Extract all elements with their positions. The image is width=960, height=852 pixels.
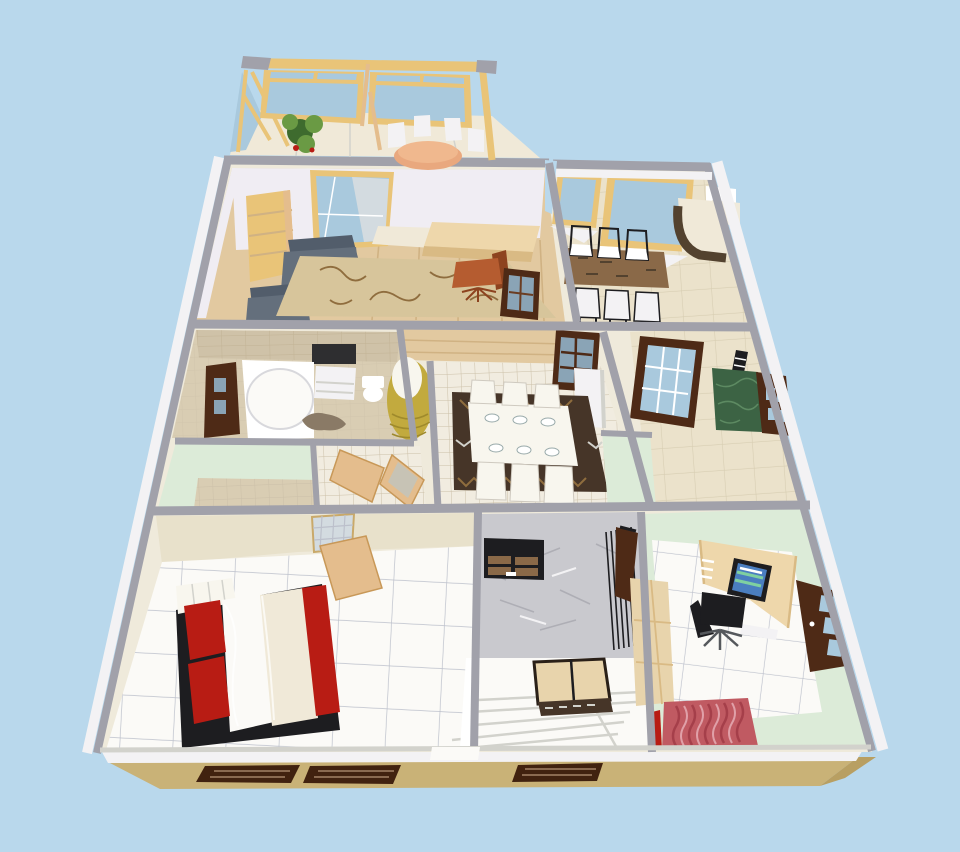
mint-room-floor [194,478,320,508]
bathroom [172,330,412,440]
bathroom-vanity[interactable] [314,366,356,400]
sunroom-corner-cap-left [241,56,271,70]
corner-bathtub[interactable] [242,360,314,440]
bed[interactable] [176,578,340,748]
wall-h2 [149,505,810,511]
top-wall-main [224,160,549,163]
wall-h1 [189,324,754,327]
kitchen-chairs-front[interactable] [476,462,574,504]
bathroom-wall-tiles [196,330,400,362]
living-room [196,168,565,322]
top-wall-dining [553,164,710,167]
green-marble-counter[interactable] [712,368,762,432]
basement-window-3[interactable] [512,763,603,782]
sunroom-table[interactable] [394,141,462,170]
wall-bath-bottom [175,441,414,443]
computer-monitor[interactable] [727,558,772,602]
sunroom-corner-cap-right [476,60,497,74]
top-wall-dining-face [556,173,712,176]
stair-notch [430,747,480,760]
bathroom-cabinet[interactable] [204,362,240,438]
kitchen-table[interactable] [468,402,578,466]
hall-bench[interactable] [534,659,613,716]
bathroom-mirror [312,344,356,364]
wall-bedroom-hall [474,512,478,752]
office-red-rug[interactable] [662,698,758,750]
basement-window-2[interactable] [303,765,401,784]
hall-wood-floor [400,328,568,364]
living-glass-door[interactable] [500,268,540,320]
floorplan-3d-viewport[interactable]: 3D aerial dollhouse render of a single-s… [0,0,960,852]
basement-window-1[interactable] [196,765,300,783]
toilet[interactable] [362,376,384,402]
wall-mint-corridor [313,443,317,508]
wall-utility-mint [601,433,652,435]
bottom-wall-edge [100,747,871,750]
kitchen-chairs-back[interactable] [470,380,560,408]
tv-cabinet[interactable] [484,538,544,580]
utility-glass-door[interactable] [630,336,704,428]
